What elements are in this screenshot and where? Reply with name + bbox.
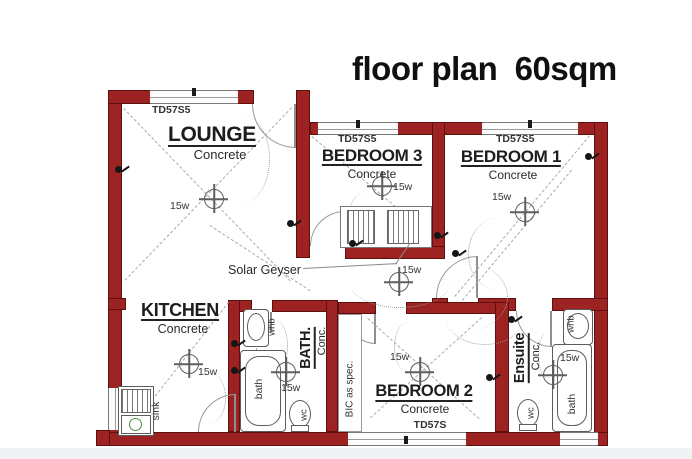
bedroom3-light-label: 15w: [393, 181, 412, 193]
bedroom1-light-label: 15w: [492, 191, 511, 203]
bic-label: BIC as spec.: [345, 361, 356, 418]
ensuite-floor-label: Conc.: [530, 342, 542, 371]
switch-icon: [287, 220, 294, 227]
light-icon-bedroom2: [410, 362, 430, 382]
bedroom1-floor-label: Concrete: [489, 168, 538, 182]
socket-icon: [585, 153, 592, 160]
ensuite-whb-label: whb: [566, 315, 577, 332]
switch-icon: [115, 166, 122, 173]
light-icon-ensuite: [543, 365, 563, 385]
door-leaf-front: [294, 104, 296, 148]
bedroom3-floor-label: Concrete: [348, 167, 397, 181]
ensuite-room-label: Ensuite: [513, 333, 530, 383]
bedroom2-light-label: 15w: [390, 351, 409, 363]
window-tick: [528, 120, 532, 128]
window-tick: [192, 88, 196, 96]
kitchen-room-label: KITCHEN: [141, 301, 219, 321]
bath-wc-tank-icon: [291, 425, 309, 432]
wall-bath-right: [326, 300, 338, 432]
light-icon-lounge: [204, 189, 224, 209]
solar-geyser-hatch: [347, 210, 375, 244]
sink-label: sink: [150, 402, 162, 421]
bedroom2-floor-label: Concrete: [401, 402, 450, 416]
wall-corner-jut: [96, 430, 110, 446]
lounge-light-label: 15w: [170, 200, 189, 212]
photo-edge-strip: [0, 448, 692, 459]
ensuite-bath-label: bath: [566, 394, 578, 414]
bedroom2-window-label: TD57S: [414, 419, 447, 431]
lounge-room-label: LOUNGE: [168, 124, 256, 147]
socket-icon: [486, 374, 493, 381]
bath-wc-label: wc: [299, 409, 310, 421]
bedroom1-window-label: TD57S5: [496, 133, 535, 145]
window-ensuite: [560, 432, 598, 446]
switch-icon: [508, 316, 515, 323]
bath-bath-label: bath: [253, 379, 265, 399]
lounge-window-label: TD57S5: [152, 104, 191, 116]
wall-lounge-bedroom3-divider: [296, 90, 310, 258]
bath-whb-label: whb: [267, 318, 278, 335]
bath-light-label: 15w: [281, 382, 300, 394]
solar-geyser-label: Solar Geyser: [228, 263, 301, 277]
kitchen-light-label: 15w: [198, 366, 217, 378]
window-tick: [404, 436, 408, 444]
kitchen-floor-label: Concrete: [158, 322, 209, 336]
window-tick: [356, 120, 360, 128]
bedroom1-room-label: BEDROOM 1: [461, 148, 561, 167]
sink-drain-icon: [129, 418, 142, 431]
switch-icon: [231, 367, 238, 374]
wiring-curve: [192, 372, 226, 424]
solar-geyser-hatch: [387, 210, 419, 244]
bath-floor-label: Conc.: [316, 327, 328, 356]
door-handle-mark: [349, 240, 356, 247]
bath-whb-bowl-icon: [247, 313, 265, 341]
light-icon-bath: [276, 362, 296, 382]
bath-room-label: BATH.: [299, 327, 316, 369]
light-icon-bedroom1: [515, 202, 535, 222]
ensuite-wc-label: wc: [526, 407, 537, 419]
light-icon-kitchen: [179, 354, 199, 374]
lounge-floor-label: Concrete: [194, 147, 247, 162]
wall-bedroom2-top-a: [338, 302, 376, 314]
hall-light-label: 15w: [402, 264, 421, 276]
bedroom3-room-label: BEDROOM 3: [322, 147, 422, 166]
bedroom2-room-label: BEDROOM 2: [375, 383, 472, 402]
door-leaf-kitchen: [234, 394, 236, 432]
switch-icon: [434, 232, 441, 239]
wall-kitchen-stub: [108, 298, 126, 310]
floor-plan: floor plan 60sqm: [0, 0, 692, 459]
door-handle-mark: [452, 250, 459, 257]
drying-rack-icon: [121, 389, 151, 413]
ensuite-wc-tank-icon: [519, 424, 537, 431]
wall-exterior-right: [594, 122, 608, 446]
bedroom3-window-label: TD57S5: [338, 133, 377, 145]
door-leaf-bedroom2: [374, 314, 376, 344]
switch-icon: [231, 340, 238, 347]
page-title: floor plan 60sqm: [352, 50, 617, 88]
ensuite-light-label: 15w: [560, 352, 579, 364]
